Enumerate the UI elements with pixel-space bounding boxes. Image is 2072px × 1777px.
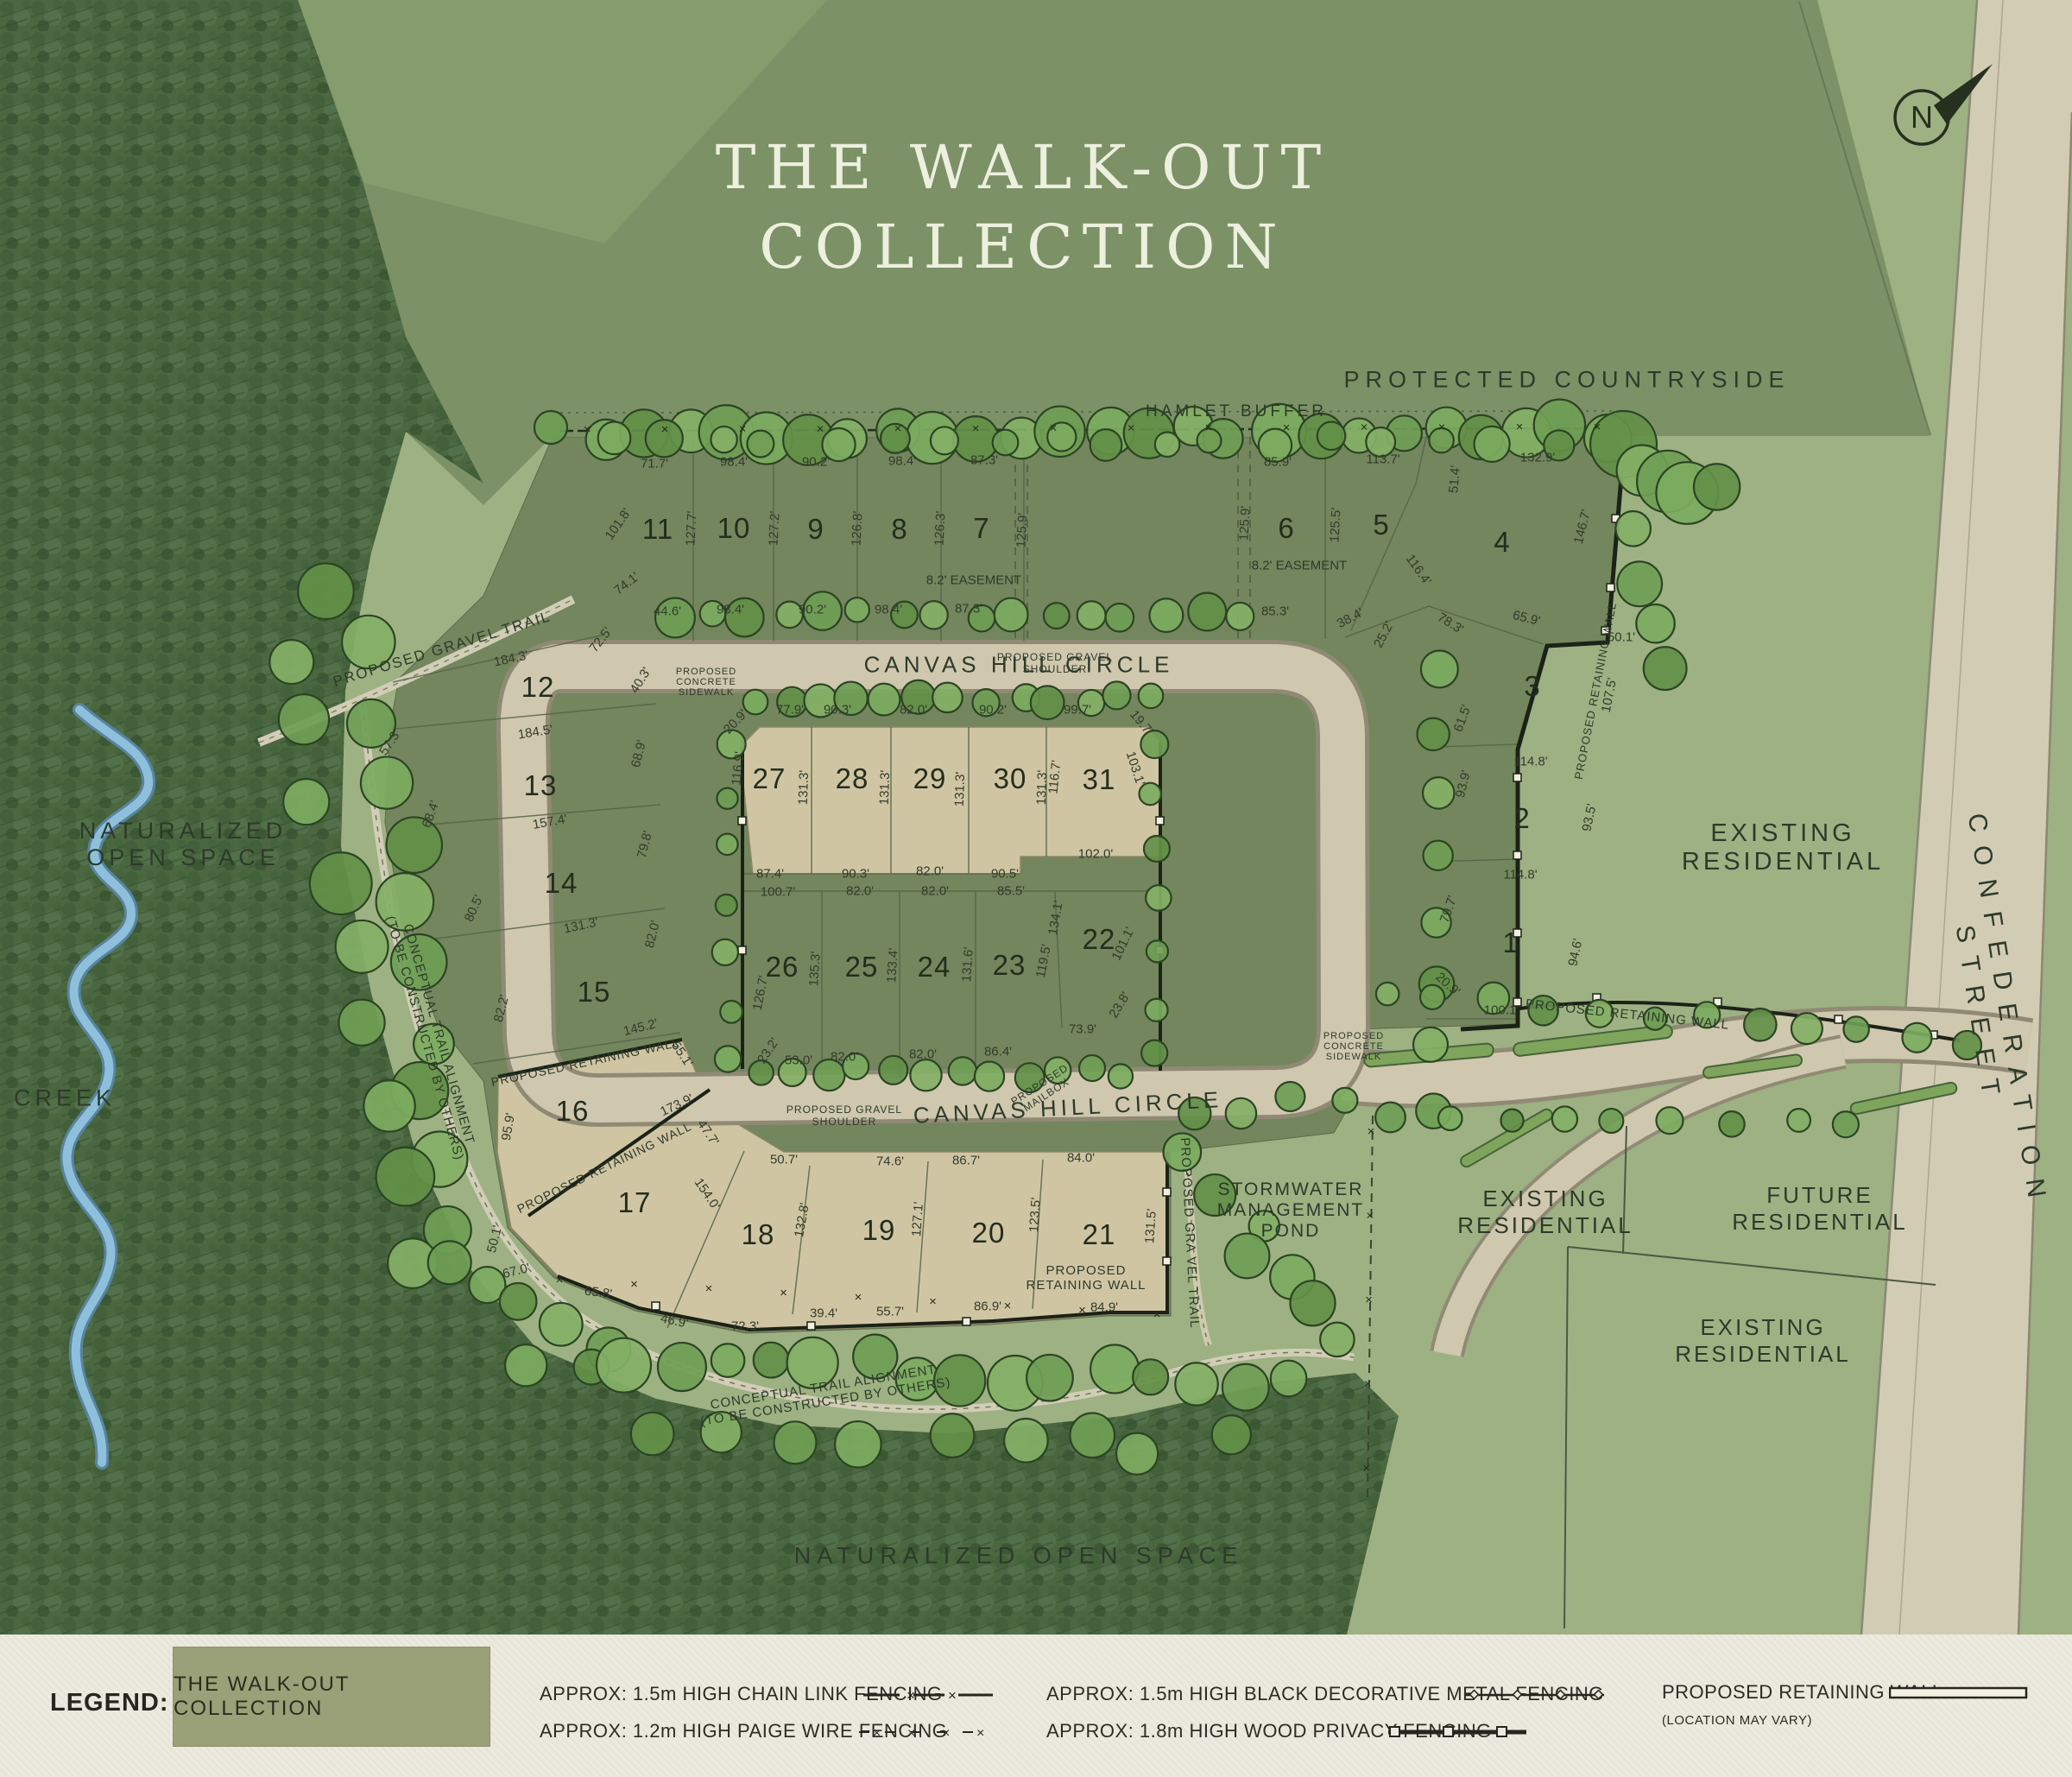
dim-label-99: 65.8' xyxy=(584,1284,613,1302)
dim-label-28: 78.3' xyxy=(1435,610,1466,636)
dim-label-74: 100.7' xyxy=(761,885,795,900)
area-label-25: PROPOSED RETAINING WALL xyxy=(515,1119,693,1216)
area-label-6: EXISTING RESIDENTIAL xyxy=(1457,1186,1633,1239)
lot-number-15: 15 xyxy=(578,976,611,1009)
dim-label-92: 95.9' xyxy=(499,1112,518,1142)
dim-label-30: 50.1' xyxy=(1608,630,1635,645)
dim-label-78: 126.7' xyxy=(750,975,771,1012)
svg-text:×: × xyxy=(873,1726,881,1741)
dim-label-50: 82.2' xyxy=(491,993,512,1023)
dim-label-63: 131.3' xyxy=(796,770,812,806)
dim-label-76: 82.0' xyxy=(921,884,949,899)
dim-label-48: 68.4' xyxy=(420,799,443,830)
dim-label-32: 61.5' xyxy=(1451,703,1475,734)
legend-swatch-label: THE WALK-OUT COLLECTION xyxy=(174,1673,490,1721)
area-label-12: CONFEDERATION STREET xyxy=(1932,812,2053,1218)
dim-label-14: 125.9' xyxy=(1236,505,1253,541)
lot-number-23: 23 xyxy=(993,949,1027,982)
lot-number-11: 11 xyxy=(642,513,673,546)
wood-fence-symbol-icon xyxy=(1388,1722,1535,1742)
site-plan-page: ×××××××××××××××××××××××××××× THE WALK-OU… xyxy=(0,0,2072,1777)
dim-label-101: 72.3' xyxy=(731,1319,759,1334)
lot-number-30: 30 xyxy=(994,762,1027,795)
dim-label-88: 82.0' xyxy=(909,1047,937,1062)
dim-label-57: 82.0' xyxy=(900,703,927,718)
dim-label-64: 131.3' xyxy=(877,770,893,806)
dim-label-49: 80.5' xyxy=(462,893,487,924)
dim-label-93: 173.9' xyxy=(658,1091,696,1119)
area-label-21: PROPOSED CONCRETE SIDEWALK xyxy=(1323,1031,1384,1062)
dim-label-58: 90.2' xyxy=(979,703,1007,718)
dim-label-109: 131.5' xyxy=(1142,1208,1159,1243)
lot-number-4: 4 xyxy=(1494,526,1510,559)
dim-label-108: 123.5' xyxy=(1027,1197,1044,1232)
dim-label-15: 125.5' xyxy=(1327,507,1343,542)
dim-label-94: 55.1' xyxy=(668,1039,696,1070)
dim-label-35: 93.9' xyxy=(1453,768,1474,799)
dim-label-60: 20.9' xyxy=(721,707,751,737)
lot-number-17: 17 xyxy=(618,1186,652,1219)
lot-number-24: 24 xyxy=(918,951,951,983)
dim-label-25: 38.4' xyxy=(1335,605,1366,631)
dim-label-11: 126.8' xyxy=(849,510,865,546)
dim-label-36: 93.5' xyxy=(1579,803,1599,833)
legend-retaining-wall-sublabel: (LOCATION MAY VARY) xyxy=(1662,1713,1812,1728)
dim-label-90: 73.9' xyxy=(1069,1022,1096,1037)
dim-label-3: 98.4' xyxy=(888,454,916,469)
dim-label-26: 25.2' xyxy=(1371,619,1397,650)
dim-label-39: 94.6' xyxy=(1565,938,1585,968)
dim-label-104: 86.7' xyxy=(952,1154,980,1168)
dim-label-19: 44.6' xyxy=(654,604,681,619)
dim-label-72: 90.5' xyxy=(991,867,1019,882)
lot-number-5: 5 xyxy=(1373,509,1389,541)
legend-swatch: THE WALK-OUT COLLECTION xyxy=(173,1647,490,1747)
dim-label-18: 74.1' xyxy=(611,569,642,598)
dim-label-82: 119.5' xyxy=(1033,943,1054,979)
dim-label-91: 23.8' xyxy=(1106,990,1133,1021)
dim-label-103: 74.6' xyxy=(876,1154,904,1169)
dim-label-29: 65.9' xyxy=(1511,608,1541,629)
lot-number-27: 27 xyxy=(753,762,786,795)
dim-label-17: 146.7' xyxy=(1571,508,1594,545)
dim-label-98: 67.0' xyxy=(501,1261,531,1281)
dim-label-24: 85.3' xyxy=(1261,604,1289,619)
dim-label-68: 103.1' xyxy=(1123,749,1148,787)
lot-number-31: 31 xyxy=(1083,763,1116,796)
dim-label-38: 79.7' xyxy=(1437,894,1461,925)
area-label-20: PROPOSED CONCRETE SIDEWALK xyxy=(676,667,736,698)
dim-label-81: 131.6' xyxy=(959,946,976,982)
dim-label-41: 100.1' xyxy=(1484,1003,1519,1018)
dim-label-16: 51.4' xyxy=(1446,465,1463,493)
dim-label-7: 132.9' xyxy=(1520,451,1555,465)
svg-text:×: × xyxy=(948,1687,957,1704)
dim-label-40: 20.9' xyxy=(1432,970,1462,999)
area-label-14: PROPOSED GRA VEL TRAIL xyxy=(1178,1137,1203,1329)
area-label-16: CONCEPTUAL TRAIL ALIGNMENT (TO BE CONSTR… xyxy=(697,1360,951,1428)
lot-number-18: 18 xyxy=(742,1218,775,1251)
legend-bar: LEGEND: THE WALK-OUT COLLECTION APPROX: … xyxy=(0,1635,2072,1777)
area-label-26: PROPOSED RETAINING WALL xyxy=(1026,1263,1146,1293)
dim-label-75: 82.0' xyxy=(846,884,874,899)
dim-label-13: 125.9' xyxy=(1014,512,1030,547)
lot-number-25: 25 xyxy=(845,951,879,983)
dim-label-47: 57.3' xyxy=(376,727,404,758)
area-label-15: CONCEPTUAL TRAIL ALIGNMENT (TO BE CONSTR… xyxy=(382,910,481,1161)
lot-number-16: 16 xyxy=(556,1095,590,1128)
lot-number-10: 10 xyxy=(717,512,751,545)
lot-number-3: 3 xyxy=(1524,670,1540,703)
dim-label-80: 133.4' xyxy=(884,947,901,983)
lot-number-14: 14 xyxy=(545,867,578,900)
dim-label-44: 157.4' xyxy=(532,812,569,832)
dim-label-61: 19.7' xyxy=(1127,707,1156,737)
dim-label-55: 77.9' xyxy=(776,703,804,718)
dim-label-62: 116.9' xyxy=(729,751,747,787)
dim-label-43: 184.5' xyxy=(517,722,554,742)
dim-label-9: 127.7' xyxy=(683,510,699,546)
lot-number-6: 6 xyxy=(1278,512,1294,545)
dim-label-112: 86.9' xyxy=(974,1300,1001,1314)
area-label-27: PROPOSED RETAINING WALL xyxy=(1525,996,1730,1033)
dim-label-96: 154.0' xyxy=(692,1175,723,1212)
area-label-22: 8.2' EASEMENT xyxy=(926,573,1021,588)
area-label-3: CREEK xyxy=(14,1085,116,1112)
area-label-9: STORMWATER MANAGEMENT POND xyxy=(1217,1179,1365,1242)
dim-label-0: 71.7' xyxy=(641,457,668,471)
dim-label-97: 50.1' xyxy=(484,1224,505,1254)
dim-label-2: 90.2' xyxy=(802,455,830,470)
lot-number-2: 2 xyxy=(1513,802,1530,835)
dim-label-27: 116.4' xyxy=(1403,552,1434,588)
svg-text:×: × xyxy=(976,1726,984,1741)
lot-number-21: 21 xyxy=(1083,1218,1116,1251)
dim-label-22: 98.4' xyxy=(875,603,902,617)
area-label-18: PROPOSED GRAVEL SHOULDER xyxy=(786,1104,902,1128)
dim-label-1: 98.4' xyxy=(720,455,748,470)
dim-label-34: 114.8' xyxy=(1513,755,1547,769)
area-label-8: EXISTING RESIDENTIAL xyxy=(1675,1314,1851,1368)
dim-label-20: 98.4' xyxy=(717,603,744,617)
svg-text:×: × xyxy=(907,1726,915,1741)
area-label-17: PROPOSED GRAVEL SHOULDER xyxy=(997,651,1113,675)
lot-number-7: 7 xyxy=(973,512,989,545)
dim-label-86: 53.0' xyxy=(785,1053,812,1068)
dim-label-77: 85.5' xyxy=(997,884,1025,899)
dim-label-45: 131.3' xyxy=(562,914,599,936)
area-label-4: NATURALIZED OPEN SPACE xyxy=(794,1543,1244,1570)
area-label-11: CANVAS HILL CIRCLE xyxy=(913,1086,1223,1129)
lot-number-8: 8 xyxy=(891,513,907,546)
area-label-7: FUTURE RESIDENTIAL xyxy=(1732,1182,1908,1236)
dim-label-21: 90.2' xyxy=(799,603,826,617)
svg-text:×: × xyxy=(906,1687,915,1704)
dim-label-52: 68.9' xyxy=(629,738,649,768)
dim-label-12: 126.3' xyxy=(932,510,948,546)
dim-label-85: 23.2' xyxy=(755,1035,782,1066)
dim-label-65: 131.3' xyxy=(952,772,968,807)
legend-heading: LEGEND: xyxy=(50,1689,169,1717)
paige-wire-fence-symbol-icon: ×××× xyxy=(859,1722,997,1742)
dim-label-5: 85.9' xyxy=(1264,455,1292,470)
lot-number-19: 19 xyxy=(862,1214,896,1247)
dim-label-67: 116.7' xyxy=(1045,760,1064,795)
dim-label-110: 39.4' xyxy=(810,1306,837,1321)
lot-number-13: 13 xyxy=(524,769,558,802)
area-label-1: HAMLET BUFFER xyxy=(1146,402,1327,421)
chain-link-fence-symbol-icon: × × xyxy=(863,1685,1001,1705)
dim-label-54: 82.0' xyxy=(642,919,663,949)
area-label-24: PROPOSED RETAINING WALL xyxy=(490,1035,680,1089)
area-label-5: EXISTING RESIDENTIAL xyxy=(1682,819,1884,876)
dim-label-89: 86.4' xyxy=(984,1045,1012,1059)
dim-label-83: 134.1' xyxy=(1045,900,1066,937)
dim-label-69: 87.4' xyxy=(756,867,784,882)
dim-label-10: 127.2' xyxy=(766,510,782,546)
area-label-2: NATURALIZED OPEN SPACE xyxy=(79,818,287,871)
metal-fence-symbol-icon xyxy=(1466,1685,1613,1705)
dim-label-46: 145.2' xyxy=(622,1016,659,1039)
dim-label-113: 84.9' xyxy=(1090,1300,1118,1315)
dim-label-71: 82.0' xyxy=(916,864,944,879)
area-label-23: 8.2' EASEMENT xyxy=(1252,559,1347,573)
dim-label-23: 87.3' xyxy=(955,602,982,617)
dim-label-106: 132.8' xyxy=(792,1202,812,1239)
dim-label-53: 79.8' xyxy=(635,829,655,859)
lot-number-28: 28 xyxy=(836,762,869,795)
dim-label-59: 99.7' xyxy=(1064,703,1091,718)
dim-label-4: 87.3' xyxy=(970,453,998,468)
lot-number-9: 9 xyxy=(807,513,824,546)
dim-label-51: 40.3' xyxy=(627,665,654,696)
map-labels: PROTECTED COUNTRYSIDEHAMLET BUFFERNATURA… xyxy=(0,0,2072,1635)
dim-label-31: 72.5' xyxy=(586,624,615,655)
dim-label-111: 55.7' xyxy=(876,1305,904,1319)
dim-label-8: 101.8' xyxy=(602,506,634,543)
dim-label-6: 113.7' xyxy=(1366,452,1399,467)
dim-label-107: 127.1' xyxy=(909,1201,926,1236)
area-label-0: PROTECTED COUNTRYSIDE xyxy=(1343,367,1790,394)
svg-text:×: × xyxy=(942,1726,950,1741)
dim-label-105: 84.0' xyxy=(1067,1151,1095,1166)
dim-label-87: 82.0' xyxy=(831,1050,858,1065)
dim-label-37: 114.8' xyxy=(1503,868,1537,882)
dim-label-102: 50.7' xyxy=(770,1153,798,1167)
dim-label-56: 90.3' xyxy=(824,703,851,718)
retaining-wall-symbol-icon xyxy=(1889,1683,2036,1704)
lot-number-20: 20 xyxy=(972,1217,1006,1249)
dim-label-42: 184.3' xyxy=(492,648,529,669)
dim-label-73: 102.0' xyxy=(1078,847,1113,862)
lot-number-1: 1 xyxy=(1502,926,1519,959)
lot-number-12: 12 xyxy=(521,671,555,704)
lot-number-29: 29 xyxy=(913,762,947,795)
dim-label-70: 90.3' xyxy=(842,867,869,882)
dim-label-100: 46.9' xyxy=(660,1311,690,1331)
dim-label-95: 47.7' xyxy=(694,1117,722,1148)
dim-label-79: 135.3' xyxy=(806,951,824,986)
